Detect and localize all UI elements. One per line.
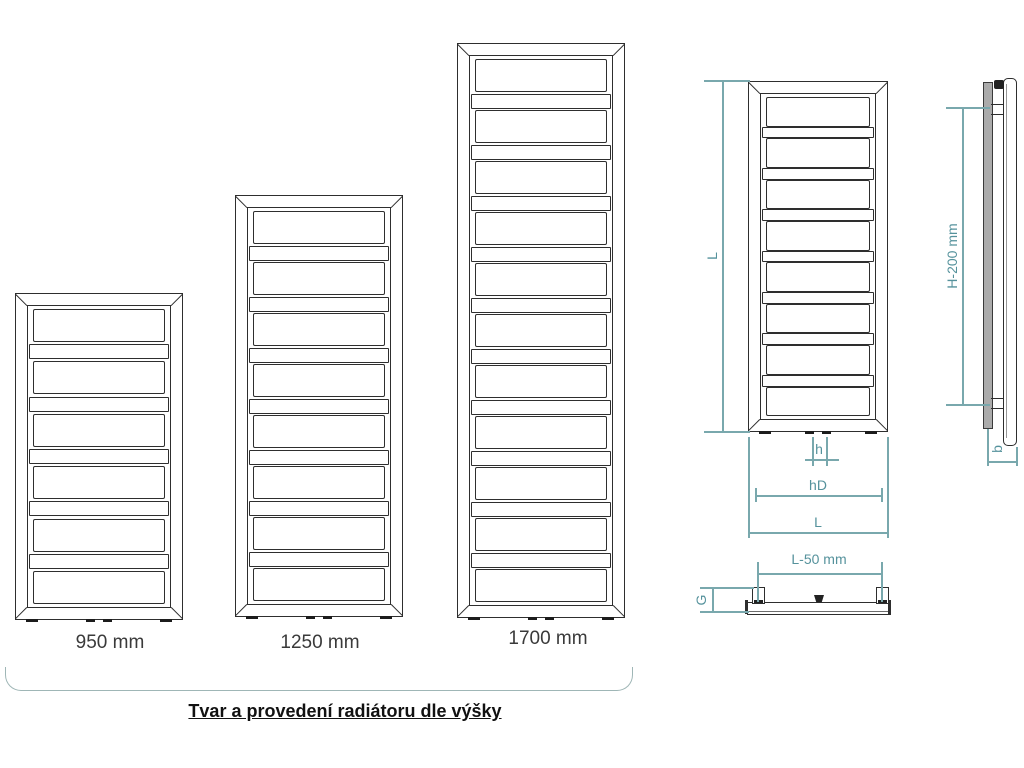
radiator-panel [475,110,607,143]
radiator-slats [764,97,872,416]
radiator-groove [471,400,611,415]
frame-bevel [876,419,888,431]
frame-bevel [171,607,183,619]
radiator-frame [235,195,403,617]
frame-bevel [15,607,27,619]
pipe-stub [865,431,877,434]
dim-extension [748,437,750,538]
radiator-groove [471,451,611,466]
radiator-groove [471,247,611,262]
size-label-1700: 1700 mm [488,628,608,650]
dim-line-bracket-spacing [962,108,964,405]
radiator-groove [29,501,169,516]
radiator-panel [33,414,165,447]
radiator-face [469,55,613,606]
pipe-stub [822,431,831,434]
middle-fitting [814,595,824,602]
radiator-panel [33,519,165,552]
radiator-panel [475,59,607,92]
radiator-panel [253,313,385,346]
pipe-stub [306,616,315,619]
dim-line-depth [987,461,1017,463]
radiator-groove [249,501,389,516]
radiator-groove [762,333,874,345]
radiator-panel [475,212,607,245]
radiator-groove [762,168,874,180]
radiator-panel [253,262,385,295]
radiator-panel [766,304,870,334]
pipe-stub [26,619,38,622]
radiator-groove [249,552,389,567]
radiator-slats [251,211,387,601]
radiator-panel [766,180,870,210]
radiator-groove [762,292,874,304]
radiator-950-drawing [15,293,183,620]
radiator-groove [471,94,611,109]
radiator-groove [249,450,389,465]
radiator-panel [766,345,870,375]
radiator-groove [762,375,874,387]
radiator-panel [766,387,870,417]
radiator-panel [253,517,385,550]
dim-label-connection: hD [798,477,838,493]
radiator-panel [253,466,385,499]
dim-label-bracket-spacing: H-200 mm [944,196,960,316]
pipe-stub [380,616,392,619]
pipe-stub [528,617,537,620]
dim-extension [757,562,759,602]
radiator-panel [475,365,607,398]
side-view-wall-rail [983,82,993,429]
radiator-groove [762,251,874,263]
pipe-stub [246,616,258,619]
radiator-panel [766,262,870,292]
radiator-groove [471,553,611,568]
radiator-groove [29,397,169,412]
pipe-stub [103,619,112,622]
wall-bracket-right [876,587,889,604]
dim-extension [700,611,749,613]
size-label-950: 950 mm [50,632,170,654]
dim-extension [887,437,889,538]
dim-line-connection [755,495,882,497]
top-view-radiator-bar [747,602,891,615]
frame-bevel [235,196,247,208]
frame-bevel [876,82,888,94]
dim-label-bracket-width: L-50 mm [769,551,869,567]
frame-bevel [391,196,403,208]
dim-extension [700,587,754,589]
radiator-groove [29,554,169,569]
pipe-stub [805,431,814,434]
radiator-groove [471,502,611,517]
pipe-stub [323,616,332,619]
radiator-groove [249,399,389,414]
pipe-stub [545,617,554,620]
dim-label-pipe-pitch: h [809,441,829,457]
dim-line-height [722,81,724,431]
radiator-panel [33,571,165,604]
group-bracket [5,667,633,691]
mounting-bracket-top [991,104,1003,115]
radiator-panel [253,211,385,244]
radiator-groove [29,344,169,359]
pipe-stub [468,617,480,620]
frame-bevel [457,44,469,56]
frame-bevel [15,294,27,306]
front-view-drawing [748,81,888,432]
radiator-1250-drawing [235,195,403,617]
dim-line-width [748,532,888,534]
radiator-panel [766,138,870,168]
frame-bevel [613,605,625,617]
radiator-groove [471,349,611,364]
dim-tick [704,80,750,82]
radiator-groove [762,209,874,221]
radiator-panel [766,221,870,251]
dim-extension [881,562,883,602]
pipe-stub [602,617,614,620]
dim-label-height: L [704,241,720,271]
air-vent-valve [994,80,1004,89]
dim-extension [1016,447,1018,466]
dim-tick [704,431,750,433]
radiator-panel [33,361,165,394]
dim-tick [946,404,990,406]
radiator-panel [475,161,607,194]
frame-bevel [457,605,469,617]
dim-line-bracket-depth [712,587,714,611]
radiator-panel [33,309,165,342]
diagram-title: Tvar a provedení radiátoru dle výšky [0,701,690,722]
radiator-panel [253,415,385,448]
radiator-slats [473,59,609,602]
wall-bracket-left [752,587,765,604]
radiator-frame [15,293,183,620]
frame-bevel [748,419,760,431]
radiator-frame [457,43,625,618]
radiator-diagram-canvas: 950 mm 1250 mm 1700 mm Tvar a provedení … [0,0,1024,768]
radiator-face [27,305,171,608]
radiator-panel [475,467,607,500]
frame-bevel [391,604,403,616]
radiator-groove [471,298,611,313]
radiator-panel [766,97,870,127]
radiator-face [760,93,876,420]
frame-bevel [235,604,247,616]
radiator-groove [249,297,389,312]
radiator-slats [31,309,167,604]
radiator-groove [762,127,874,139]
radiator-groove [249,348,389,363]
frame-bevel [171,294,183,306]
mounting-bracket-bottom [991,398,1003,409]
dim-line-pipe-pitch [805,459,839,461]
radiator-panel [475,263,607,296]
radiator-panel [33,466,165,499]
radiator-panel [253,568,385,601]
dim-tick [946,107,990,109]
radiator-panel [253,364,385,397]
frame-bevel [748,82,760,94]
radiator-1700-drawing [457,43,625,618]
pipe-stub [759,431,771,434]
dim-label-width: L [798,514,838,530]
radiator-groove [471,145,611,160]
radiator-groove [29,449,169,464]
radiator-groove [249,246,389,261]
radiator-panel [475,518,607,551]
pipe-stub [160,619,172,622]
pipe-stub [86,619,95,622]
radiator-panel [475,569,607,602]
radiator-groove [471,196,611,211]
radiator-frame [748,81,888,432]
radiator-face [247,207,391,605]
dim-label-depth: b [989,439,1005,459]
side-view-slab-edge [1006,84,1007,438]
radiator-panel [475,314,607,347]
frame-bevel [613,44,625,56]
dim-line-bracket-width [757,573,881,575]
dim-label-bracket-depth: G [693,591,709,609]
size-label-1250: 1250 mm [260,632,380,654]
radiator-panel [475,416,607,449]
